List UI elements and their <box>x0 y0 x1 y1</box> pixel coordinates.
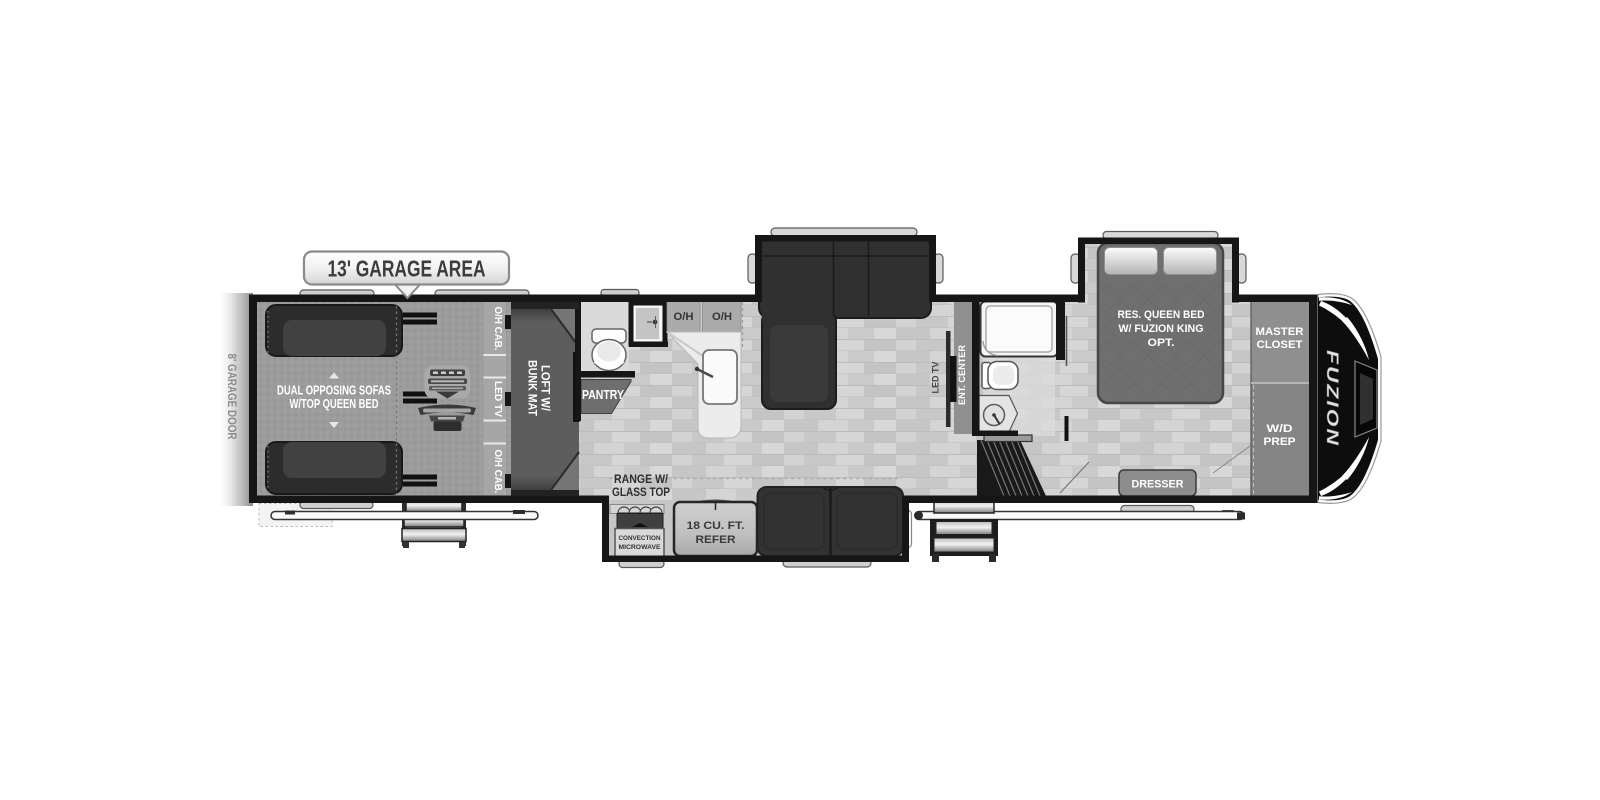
svg-text:PREP: PREP <box>1264 436 1296 448</box>
svg-text:O/H CAB.: O/H CAB. <box>492 450 503 494</box>
svg-text:8' GARAGE DOOR: 8' GARAGE DOOR <box>225 354 237 441</box>
svg-text:FUZION: FUZION <box>1323 350 1341 447</box>
svg-text:LED TV: LED TV <box>931 362 941 394</box>
svg-text:CONVECTION: CONVECTION <box>619 535 661 542</box>
svg-text:O/H CAB.: O/H CAB. <box>492 307 503 351</box>
svg-text:ENT. CENTER: ENT. CENTER <box>957 345 967 405</box>
svg-text:O/H: O/H <box>674 311 694 323</box>
svg-text:LOFT W/: LOFT W/ <box>539 365 553 412</box>
svg-text:MICROWAVE: MICROWAVE <box>619 544 662 551</box>
svg-text:O/H: O/H <box>712 311 732 323</box>
svg-text:W/ FUZION KING: W/ FUZION KING <box>1119 323 1204 335</box>
svg-text:18 CU. FT.: 18 CU. FT. <box>687 520 745 532</box>
svg-text:GLASS TOP: GLASS TOP <box>612 487 670 499</box>
svg-text:OPT.: OPT. <box>1148 337 1175 349</box>
svg-text:REFER: REFER <box>696 534 736 546</box>
svg-text:DUAL OPPOSING SOFAS: DUAL OPPOSING SOFAS <box>277 384 391 398</box>
svg-text:13' GARAGE AREA: 13' GARAGE AREA <box>328 256 486 282</box>
svg-text:RES. QUEEN BED: RES. QUEEN BED <box>1118 309 1205 321</box>
svg-text:MASTER: MASTER <box>1256 326 1304 338</box>
svg-text:LED TV: LED TV <box>492 381 503 417</box>
svg-text:RANGE W/: RANGE W/ <box>614 474 669 486</box>
svg-text:W/TOP QUEEN BED: W/TOP QUEEN BED <box>290 397 379 411</box>
svg-text:PANTRY: PANTRY <box>582 388 625 402</box>
svg-text:BUNK MAT: BUNK MAT <box>526 360 540 417</box>
svg-text:CLOSET: CLOSET <box>1257 339 1303 351</box>
svg-text:W/D: W/D <box>1267 423 1293 435</box>
svg-text:DRESSER: DRESSER <box>1132 479 1184 491</box>
